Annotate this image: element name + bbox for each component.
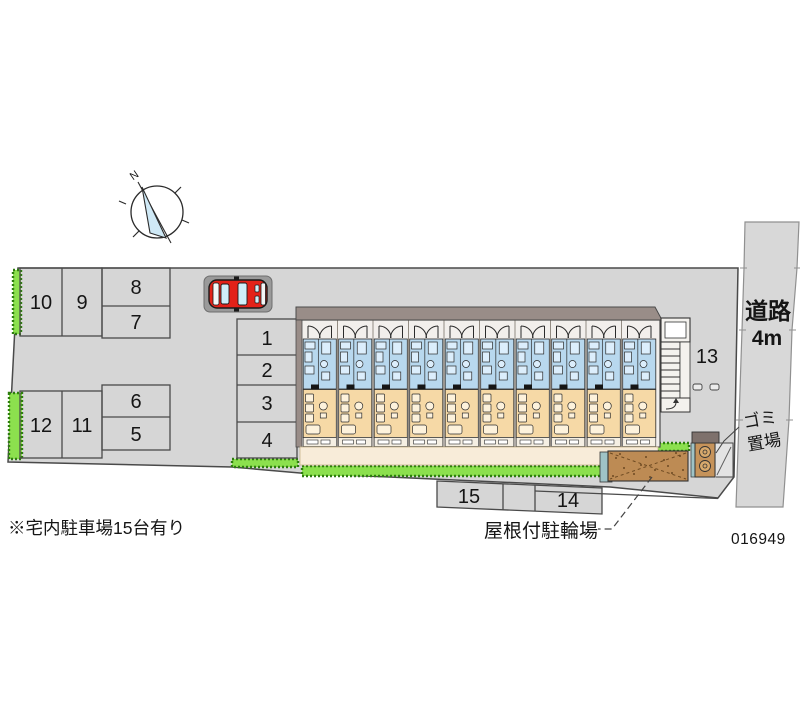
site-plan-page: 道路 4m N xyxy=(0,0,800,727)
shed-dot xyxy=(640,464,642,466)
parking-stall-label: 2 xyxy=(261,360,272,382)
parking-stall-label: 5 xyxy=(130,424,141,446)
north-compass: N xyxy=(119,169,189,243)
building-roof-band xyxy=(296,307,662,320)
car-icon xyxy=(204,276,272,312)
parking-stall-label: 12 xyxy=(30,415,52,437)
parking-note: ※宅内駐車場15台有り xyxy=(8,518,185,538)
parking-stall-label: 3 xyxy=(261,393,272,415)
apartment-unit xyxy=(515,321,549,448)
shed-dot xyxy=(679,455,681,457)
apartment-units xyxy=(303,321,656,448)
road-label: 道路 xyxy=(745,298,792,324)
apartment-unit xyxy=(303,326,336,447)
apartment-unit xyxy=(373,321,407,448)
road-width-label: 4m xyxy=(752,327,782,350)
shed-dot xyxy=(675,452,677,454)
site-plan-drawing: 道路 4m N xyxy=(0,0,800,727)
apartment-unit xyxy=(551,321,585,448)
hedge xyxy=(232,459,298,467)
shed-dot xyxy=(671,472,673,474)
parking-stall-label: 11 xyxy=(72,415,93,437)
parking-stall-label: 7 xyxy=(130,312,141,334)
shed-dot xyxy=(663,459,665,461)
parking-stall-label: 8 xyxy=(130,277,141,299)
parking-stall-label: 10 xyxy=(30,292,52,314)
stairwell xyxy=(661,318,690,412)
shed-dot xyxy=(682,469,684,471)
road-surface xyxy=(736,222,799,507)
garbage-roof xyxy=(692,432,719,443)
bicycle-shed-roof xyxy=(608,451,688,481)
parking-stall-label: 1 xyxy=(261,328,272,350)
apartment-unit xyxy=(409,321,443,448)
parking-stall-label: 4 xyxy=(261,430,272,452)
shed-dot xyxy=(623,467,625,469)
hedge xyxy=(302,466,652,476)
shed-dot xyxy=(645,456,647,458)
parking-stall-label: 9 xyxy=(76,292,87,314)
main-building xyxy=(296,307,690,447)
parking-stall-label: 15 xyxy=(458,486,480,508)
parking-stall-label: 13 xyxy=(696,346,718,368)
bicycle-shed xyxy=(600,451,688,482)
shed-dot xyxy=(633,473,635,475)
north-label: N xyxy=(128,169,141,183)
shed-dot xyxy=(654,469,656,471)
apartment-unit xyxy=(586,321,620,448)
building-west-wall xyxy=(296,320,302,447)
shed-dot xyxy=(612,475,614,477)
apartment-unit xyxy=(338,321,372,448)
apartment-unit xyxy=(622,321,656,448)
apartment-unit xyxy=(480,321,514,448)
compass-needle xyxy=(142,187,166,238)
shed-dot xyxy=(667,465,669,467)
parking-stall-label: 14 xyxy=(557,490,579,512)
bicycle-shed-label: 屋根付駐輪場 xyxy=(484,520,598,542)
road-area: 道路 4m xyxy=(736,222,800,507)
apartment-unit xyxy=(444,321,478,448)
shed-dot xyxy=(649,476,651,478)
shed-dot xyxy=(619,453,621,455)
plan-number: 016949 xyxy=(731,531,786,548)
parking-stall-label: 6 xyxy=(130,391,141,413)
shed-dot xyxy=(615,457,617,459)
